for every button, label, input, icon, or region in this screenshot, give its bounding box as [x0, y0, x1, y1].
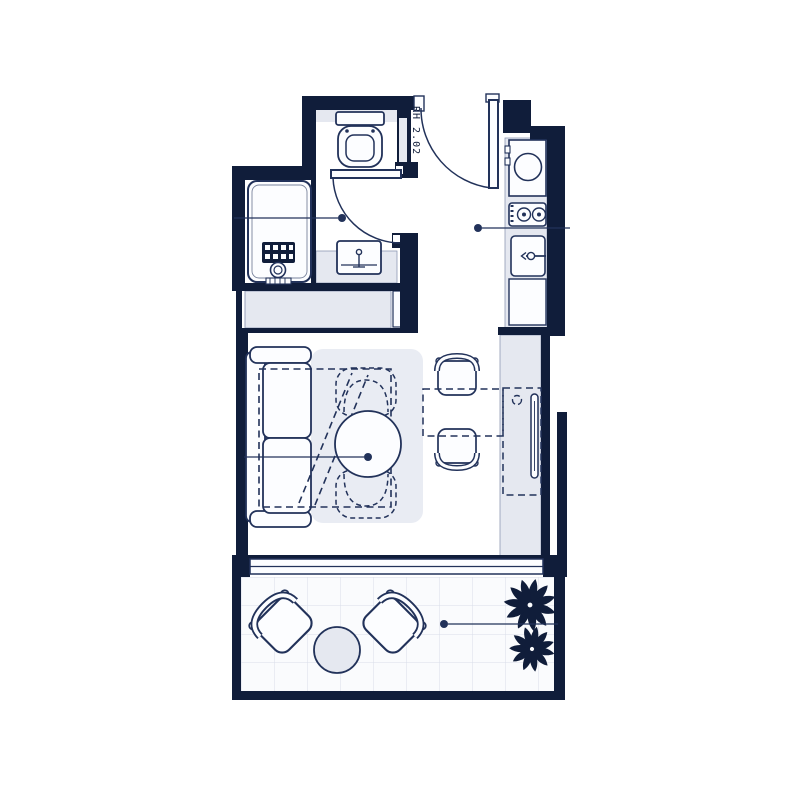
kitchen-sink — [511, 236, 546, 276]
door-swing-arc — [421, 108, 491, 188]
wall-segment — [498, 327, 552, 335]
leader-dot — [338, 214, 346, 222]
leader-dot — [440, 620, 448, 628]
unit-label: RH 2.02 — [410, 106, 421, 155]
leader-dot — [474, 224, 482, 232]
floor-plan: RH 2.02 — [0, 0, 800, 800]
wall-segment — [232, 283, 418, 291]
cooktop — [509, 203, 546, 226]
sofa-cushion — [263, 363, 311, 438]
dining-chair — [436, 429, 478, 468]
vanity-sink — [337, 241, 381, 274]
washing-machine — [248, 181, 311, 284]
wall-segment — [547, 126, 565, 336]
window-end-block — [232, 555, 250, 577]
wall-segment — [232, 577, 241, 700]
kitchen-appliance — [505, 140, 546, 196]
leader-dot — [364, 453, 372, 461]
wall-segment — [554, 577, 565, 700]
balcony-table — [314, 627, 360, 673]
wall-segment — [541, 335, 550, 556]
sofa-armrest — [250, 347, 311, 363]
utility-closet — [248, 181, 311, 284]
wall-segment — [236, 328, 418, 333]
bathroom — [336, 112, 384, 274]
wall-segment — [236, 290, 242, 333]
washer-door-icon — [271, 263, 286, 278]
wall-segment — [232, 691, 565, 700]
wall-segment — [503, 100, 531, 133]
toilet — [336, 112, 384, 167]
floor-plan-canvas: RH 2.02 — [0, 0, 800, 800]
door-leaf — [331, 170, 401, 178]
kitchen-cabinet — [509, 279, 546, 325]
round-table — [335, 411, 401, 477]
bathroom-door — [331, 170, 401, 243]
door-swing-arc — [333, 178, 400, 243]
wall-segment — [302, 96, 316, 172]
door-jamb — [393, 235, 400, 242]
wardrobe — [245, 291, 391, 328]
faucet-icon — [356, 249, 361, 254]
wall-segment — [557, 412, 567, 556]
door-leaf — [489, 100, 498, 188]
window-end-block — [543, 555, 567, 577]
sofa — [246, 347, 311, 527]
sofa-cushion — [263, 438, 311, 513]
entry-door — [421, 94, 499, 188]
wall-segment — [232, 166, 245, 290]
faucet-icon — [527, 252, 534, 259]
tv-panel — [531, 394, 538, 478]
